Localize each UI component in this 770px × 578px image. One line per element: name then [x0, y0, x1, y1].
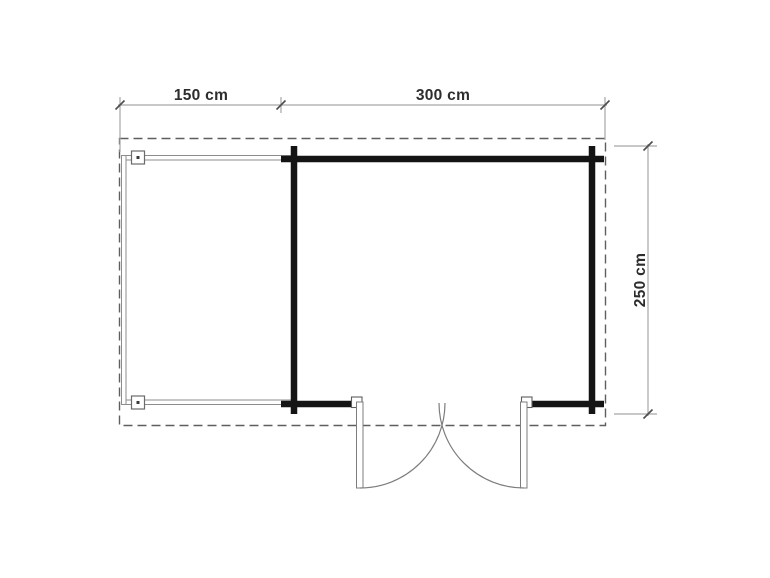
dimension-top	[118, 97, 607, 152]
dim-label-depth: 250 cm	[632, 253, 649, 307]
door-swing-arc-left	[360, 403, 445, 488]
floor-plan-drawing: 150 cm 300 cm 250 cm	[0, 0, 770, 578]
terrace-post-top-left-dot	[137, 156, 140, 159]
terrace-beam-bottom	[122, 400, 292, 405]
floor-plan-canvas: 150 cm 300 cm 250 cm	[0, 0, 770, 578]
terrace-beam-top	[122, 156, 292, 161]
dim-label-terrace-width: 150 cm	[174, 87, 228, 104]
roof-overhang-outline	[120, 139, 606, 426]
terrace-posts	[132, 151, 145, 409]
double-door	[352, 397, 533, 488]
terrace-beam-left	[122, 156, 127, 405]
door-leaf-left	[357, 402, 364, 488]
terrace	[122, 156, 292, 405]
door-swing-arc-right	[439, 403, 524, 488]
dim-label-cabin-width: 300 cm	[416, 87, 470, 104]
terrace-post-bottom-left-dot	[137, 401, 140, 404]
cabin-walls	[281, 146, 604, 414]
door-leaf-right	[521, 402, 528, 488]
